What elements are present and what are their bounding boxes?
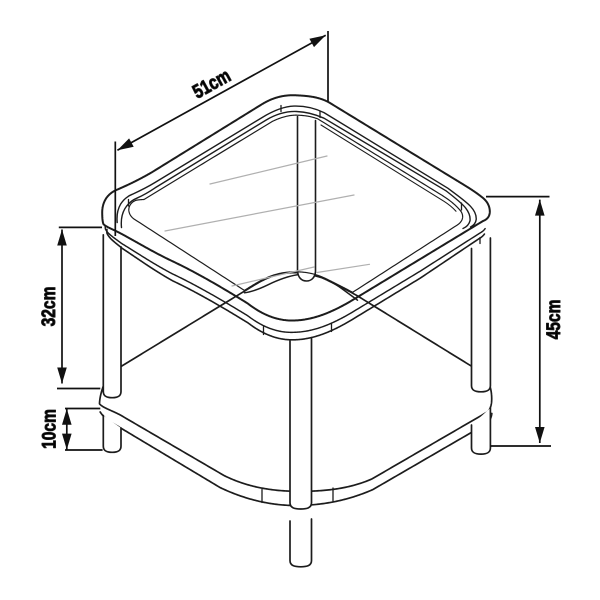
svg-text:10cm: 10cm (38, 409, 60, 449)
svg-text:32cm: 32cm (37, 287, 59, 327)
svg-text:45cm: 45cm (542, 300, 564, 340)
